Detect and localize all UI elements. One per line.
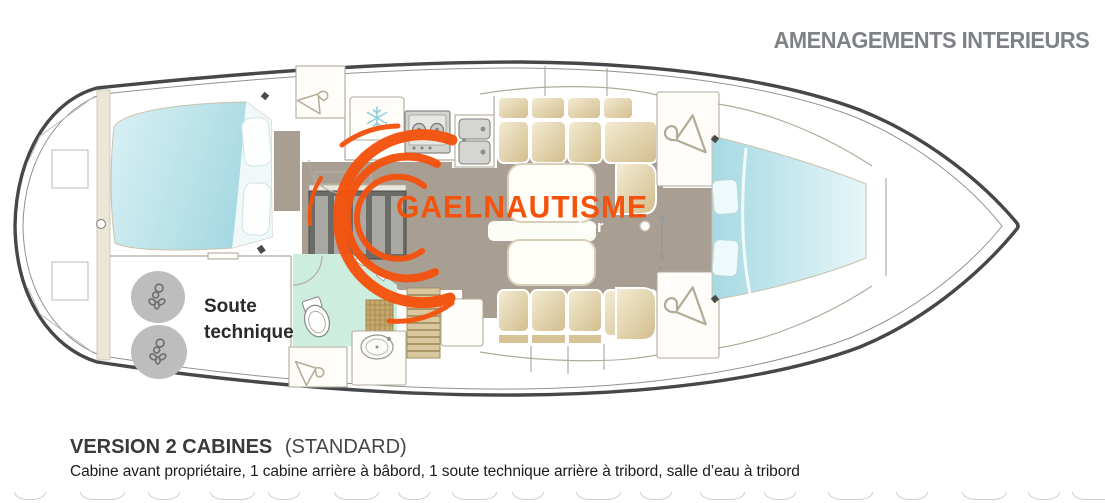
door-threshold — [208, 253, 238, 259]
hanging-locker — [657, 272, 719, 358]
washbasin-icon — [352, 331, 406, 385]
cropped-text-arc — [828, 492, 873, 500]
hanging-locker — [657, 92, 719, 186]
sink-icon — [455, 115, 494, 167]
cropped-text-arc — [334, 492, 379, 500]
porthole-icon — [97, 220, 106, 229]
cropped-text-arc — [210, 492, 255, 500]
watermark-brand: GAELNAUTISME — [396, 190, 648, 226]
shower-grate-icon — [366, 300, 393, 331]
version-heading: VERSION 2 CABINES (STANDARD) — [70, 436, 407, 459]
page-title: AMENAGEMENTS INTERIEURS — [773, 27, 1089, 54]
layout-description: Cabine avant propriétaire, 1 cabine arri… — [70, 463, 800, 481]
aft-cabin-nightstand — [274, 131, 300, 211]
saloon-table — [508, 240, 595, 285]
cropped-text-arc — [576, 492, 621, 500]
boat-layout-page: AMENAGEMENTS INTERIEURS GAELNAUTISME ker… — [0, 0, 1105, 503]
soute-technique-label: Soute technique — [204, 294, 294, 346]
watermark-partial-tagline: ker — [578, 217, 604, 237]
pillow — [242, 182, 272, 235]
cropped-text-arc — [962, 492, 1007, 500]
pillow — [712, 179, 739, 215]
version-heading-suffix: (STANDARD) — [285, 436, 407, 458]
cropped-text-arc — [452, 492, 497, 500]
cropped-text-arc — [700, 492, 745, 500]
pillow — [241, 117, 272, 167]
version-heading-bold: VERSION 2 CABINES — [70, 436, 272, 458]
corner-cushion — [616, 288, 656, 340]
boat-floorplan — [0, 0, 1105, 503]
pillow — [712, 239, 739, 277]
cropped-text-arc — [80, 492, 125, 500]
